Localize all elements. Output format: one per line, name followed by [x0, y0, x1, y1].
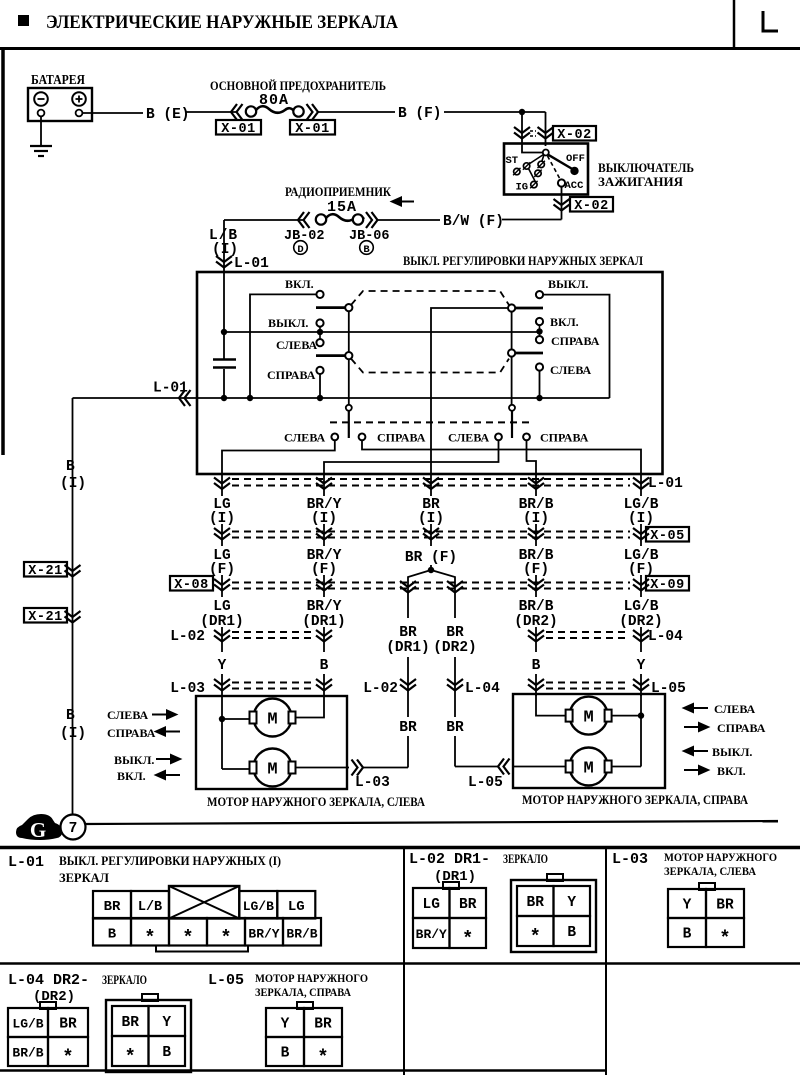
svg-text:L-05: L-05 — [468, 775, 503, 791]
svg-text:*: * — [125, 1046, 136, 1068]
svg-text:СПРАВА: СПРАВА — [107, 726, 156, 740]
svg-text:L-04: L-04 — [648, 629, 683, 645]
svg-text:X-02: X-02 — [557, 128, 591, 143]
svg-text:BR: BR — [104, 899, 121, 915]
svg-text:LG: LG — [213, 599, 230, 615]
svg-text:ST: ST — [506, 155, 519, 167]
svg-text:МОТОР НАРУЖНОГО ЗЕРКАЛА, СПРА: МОТОР НАРУЖНОГО ЗЕРКАЛА, СПРАВА — [522, 793, 748, 807]
svg-text:L-01: L-01 — [648, 476, 683, 492]
svg-text:B: B — [532, 658, 541, 674]
svg-text:Y: Y — [218, 658, 227, 674]
svg-text:X-02: X-02 — [574, 199, 608, 214]
svg-text:L-04 DR2-: L-04 DR2- — [8, 972, 89, 989]
svg-text:СПРАВА: СПРАВА — [267, 368, 316, 382]
svg-text:B: B — [320, 658, 329, 674]
svg-text:D: D — [297, 244, 303, 256]
svg-text:ЗЕРКАЛО: ЗЕРКАЛО — [102, 972, 147, 987]
svg-text:BR/B: BR/B — [12, 1046, 43, 1061]
svg-text:(I): (I) — [60, 476, 86, 492]
svg-text:ОСНОВНОЙ ПРЕДОХРАНИТЕЛЬ: ОСНОВНОЙ ПРЕДОХРАНИТЕЛЬ — [210, 78, 386, 93]
svg-text:BR: BR — [314, 1017, 332, 1033]
svg-text:X-09: X-09 — [650, 578, 684, 593]
svg-text:BR: BR — [716, 898, 734, 914]
svg-text:ACC: ACC — [565, 180, 585, 192]
svg-text:G: G — [30, 818, 46, 842]
svg-text:LG/B: LG/B — [12, 1017, 43, 1032]
svg-text:BR: BR — [122, 1015, 140, 1031]
svg-text:ЗЕРКАЛ: ЗЕРКАЛ — [59, 871, 110, 885]
svg-text:СЛЕВА: СЛЕВА — [550, 363, 592, 377]
svg-text:*: * — [719, 928, 730, 950]
svg-text:7: 7 — [69, 821, 78, 837]
svg-text:X-21: X-21 — [28, 564, 62, 579]
svg-text:OFF: OFF — [566, 153, 585, 165]
svg-text:ВЫКЛ. РЕГУЛИРОВКИ НАРУЖНЫХ (I): ВЫКЛ. РЕГУЛИРОВКИ НАРУЖНЫХ (I) — [59, 854, 281, 868]
svg-text:L-02: L-02 — [363, 681, 398, 697]
svg-text:Y: Y — [637, 658, 646, 674]
svg-text:BR/Y: BR/Y — [307, 599, 342, 615]
svg-text:B: B — [281, 1046, 290, 1062]
svg-text:L-02: L-02 — [170, 629, 205, 645]
svg-text:МОТОР НАРУЖНОГО ЗЕРКАЛА, СЛЕВА: МОТОР НАРУЖНОГО ЗЕРКАЛА, СЛЕВА — [207, 795, 425, 809]
svg-text:BR: BR — [459, 897, 477, 913]
svg-text:L-04: L-04 — [465, 681, 500, 697]
svg-text:(DR1): (DR1) — [386, 640, 430, 656]
svg-text:Y: Y — [281, 1017, 290, 1033]
svg-text:L/B: L/B — [138, 900, 162, 915]
svg-text:СЛЕВА: СЛЕВА — [448, 431, 490, 445]
svg-text:LG: LG — [288, 899, 305, 915]
svg-text:ЭЛЕКТРИЧЕСКИЕ НАРУЖНЫЕ ЗЕРКАЛА: ЭЛЕКТРИЧЕСКИЕ НАРУЖНЫЕ ЗЕРКАЛА — [46, 12, 398, 33]
svg-text:МОТОР НАРУЖНОГО: МОТОР НАРУЖНОГО — [255, 971, 368, 985]
svg-text:*: * — [144, 927, 155, 949]
svg-text:B/W (F): B/W (F) — [443, 214, 504, 230]
svg-text:ВКЛ.: ВКЛ. — [550, 315, 579, 329]
svg-text:СПРАВА: СПРАВА — [551, 334, 600, 348]
svg-text:BR: BR — [527, 895, 545, 911]
svg-text:БАТАРЕЯ: БАТАРЕЯ — [31, 72, 85, 87]
svg-text:M: M — [583, 709, 593, 728]
svg-text:СЛЕВА: СЛЕВА — [714, 702, 756, 716]
svg-text:*: * — [317, 1047, 328, 1069]
svg-text:IG: IG — [516, 182, 529, 194]
svg-text:LG/B: LG/B — [624, 599, 659, 615]
svg-text:*: * — [462, 928, 473, 950]
svg-text:*: * — [62, 1047, 73, 1069]
svg-text:ВКЛ.: ВКЛ. — [117, 769, 146, 783]
svg-text:B: B — [66, 459, 75, 475]
svg-text:ЗЕРКАЛО: ЗЕРКАЛО — [503, 851, 548, 866]
svg-text:X-05: X-05 — [650, 529, 684, 544]
svg-text:L-05: L-05 — [208, 972, 244, 989]
svg-text:BR/Y: BR/Y — [416, 927, 447, 942]
svg-text:X-21: X-21 — [28, 610, 62, 625]
svg-text:L-03: L-03 — [612, 851, 648, 868]
svg-text:BR/Y: BR/Y — [248, 926, 279, 941]
svg-text:СПРАВА: СПРАВА — [717, 721, 766, 735]
svg-text:BR: BR — [399, 720, 417, 736]
svg-text:B: B — [66, 708, 75, 724]
svg-text:B: B — [683, 927, 692, 943]
svg-text:M: M — [267, 761, 277, 780]
svg-text:BR/B: BR/B — [286, 926, 317, 941]
svg-text:BR: BR — [399, 625, 417, 641]
svg-text:B (E): B (E) — [146, 107, 190, 123]
svg-text:Y: Y — [567, 895, 576, 911]
svg-text:Y: Y — [683, 898, 692, 914]
svg-text:(DR2): (DR2) — [433, 640, 477, 656]
svg-text:Y: Y — [162, 1015, 171, 1031]
svg-text:L-02 DR1-: L-02 DR1- — [409, 851, 490, 868]
svg-text:BR/B: BR/B — [519, 599, 554, 615]
svg-text:РАДИОПРИЕМНИК: РАДИОПРИЕМНИК — [285, 184, 391, 199]
svg-text:L-01: L-01 — [8, 854, 44, 871]
svg-text:B (F): B (F) — [398, 106, 442, 122]
svg-text:*: * — [530, 926, 541, 948]
svg-text:X-08: X-08 — [174, 578, 208, 593]
svg-text:СЛЕВА: СЛЕВА — [276, 338, 318, 352]
svg-text:СПРАВА: СПРАВА — [540, 431, 589, 445]
svg-text:M: M — [583, 760, 593, 779]
svg-text:B: B — [108, 926, 117, 942]
svg-text:ВЫКЛ.: ВЫКЛ. — [548, 277, 588, 291]
svg-text:B: B — [567, 925, 576, 941]
svg-text:ЗАЖИГАНИЯ: ЗАЖИГАНИЯ — [598, 174, 684, 189]
svg-text:ВКЛ.: ВКЛ. — [285, 277, 314, 291]
svg-text:СПРАВА: СПРАВА — [377, 431, 426, 445]
svg-text:ВЫКЛ.: ВЫКЛ. — [114, 753, 154, 767]
svg-text:X-01: X-01 — [221, 122, 255, 137]
svg-text:B: B — [363, 244, 370, 256]
svg-text:МОТОР НАРУЖНОГО: МОТОР НАРУЖНОГО — [664, 850, 777, 864]
svg-text:BR: BR — [446, 720, 464, 736]
svg-text:LG/B: LG/B — [243, 899, 274, 914]
svg-text:СЛЕВА: СЛЕВА — [107, 708, 149, 722]
svg-text:L-01: L-01 — [234, 256, 269, 272]
svg-text:LG: LG — [423, 897, 440, 913]
svg-text:ЗЕРКАЛА, СЛЕВА: ЗЕРКАЛА, СЛЕВА — [664, 864, 756, 878]
svg-text:ВЫКЛ.: ВЫКЛ. — [712, 745, 752, 759]
svg-text:M: M — [267, 711, 277, 730]
svg-text:ВКЛ.: ВКЛ. — [717, 764, 746, 778]
svg-text:B: B — [162, 1045, 171, 1061]
svg-text:ВЫКЛЮЧАТЕЛЬ: ВЫКЛЮЧАТЕЛЬ — [598, 160, 694, 175]
svg-text:СЛЕВА: СЛЕВА — [284, 431, 326, 445]
svg-text:BR (F): BR (F) — [405, 550, 457, 566]
svg-text:BR: BR — [446, 625, 464, 641]
svg-text:BR: BR — [59, 1017, 77, 1033]
svg-text:L-03: L-03 — [170, 681, 205, 697]
svg-text:ВЫКЛ.: ВЫКЛ. — [268, 316, 308, 330]
svg-text:ЗЕРКАЛА, СПРАВА: ЗЕРКАЛА, СПРАВА — [255, 985, 351, 999]
svg-text:L-03: L-03 — [355, 775, 390, 791]
svg-text:X-01: X-01 — [295, 122, 329, 137]
svg-text:(I): (I) — [60, 726, 86, 742]
svg-text:ВЫКЛ. РЕГУЛИРОВКИ НАРУЖНЫХ ЗЕР: ВЫКЛ. РЕГУЛИРОВКИ НАРУЖНЫХ ЗЕРКАЛ — [403, 253, 643, 268]
